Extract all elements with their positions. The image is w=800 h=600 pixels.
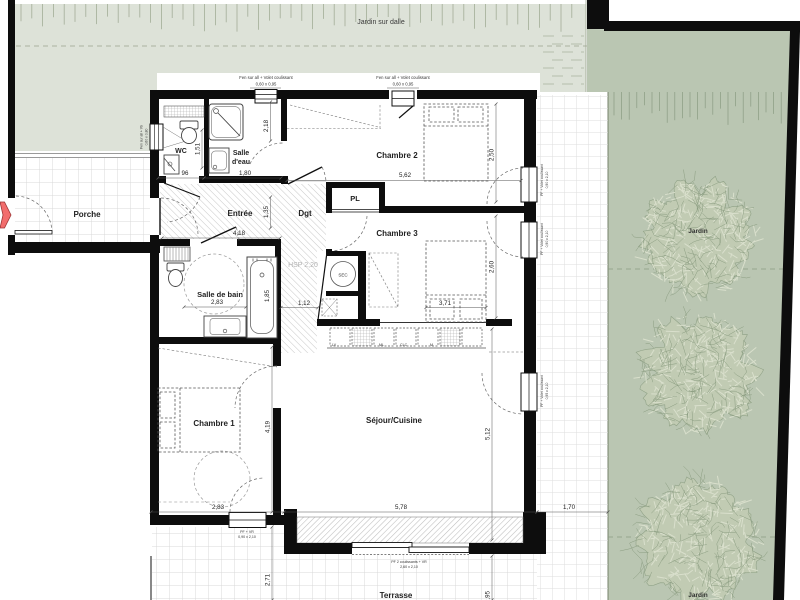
svg-text:Fen sur all + Volet coulissant: Fen sur all + Volet coulissant [376,75,430,80]
svg-text:PL: PL [350,194,360,203]
svg-text:5,62: 5,62 [399,172,412,179]
svg-text:Séjour/Cuisine: Séjour/Cuisine [366,416,423,425]
svg-text:1,12: 1,12 [298,300,311,307]
svg-text:96: 96 [182,170,189,177]
svg-text:WC: WC [175,148,187,155]
svg-text:2,83: 2,83 [212,504,225,511]
svg-text:Porche: Porche [73,210,101,219]
svg-text:2,71: 2,71 [265,573,272,586]
svg-text:Chambre 2: Chambre 2 [376,151,418,160]
svg-text:0,60 x 0,95: 0,60 x 0,95 [393,82,414,87]
svg-text:Jardin: Jardin [688,228,708,235]
svg-text:1,51: 1,51 [195,142,202,155]
svg-text:2,60: 2,60 [489,260,496,273]
svg-text:0,90 x 2,10: 0,90 x 2,10 [545,230,549,247]
svg-text:Chambre 3: Chambre 3 [376,229,418,238]
svg-text:0,90 x 2,10: 0,90 x 2,10 [545,171,549,188]
svg-text:Jardin: Jardin [688,592,708,599]
svg-text:1,85: 1,85 [264,289,271,302]
svg-text:Entrée: Entrée [228,209,253,218]
svg-text:4,18: 4,18 [233,230,246,237]
svg-text:PF + Volet coulissant: PF + Volet coulissant [540,164,544,196]
svg-text:PF + VR: PF + VR [240,530,254,534]
svg-text:5,78: 5,78 [395,504,408,511]
svg-text:1,70: 1,70 [563,504,576,511]
svg-text:0,60 x 0,80: 0,60 x 0,80 [145,128,149,145]
svg-text:0,95 x 2,10: 0,95 x 2,10 [545,382,549,399]
svg-text:2,18: 2,18 [263,119,270,132]
svg-text:Salle de bain: Salle de bain [197,290,243,299]
svg-text:Fen sur all + Volet coulissant: Fen sur all + Volet coulissant [239,75,293,80]
svg-text:SEC: SEC [338,273,348,278]
svg-text:0,60 x 0,95: 0,60 x 0,95 [256,82,277,87]
svg-text:Salle: Salle [233,150,249,157]
svg-text:2,60 x 2,10: 2,60 x 2,10 [400,565,418,569]
svg-text:2,83: 2,83 [211,299,224,306]
svg-text:5,12: 5,12 [485,427,492,440]
svg-text:2,50: 2,50 [489,148,496,161]
svg-text:CLC: CLC [400,343,408,347]
svg-text:PF + Volet coulissant: PF + Volet coulissant [540,375,544,407]
svg-text:3,71: 3,71 [439,300,452,307]
svg-text:PF + Volet coulissant: PF + Volet coulissant [540,223,544,255]
svg-text:0,90 x 2,10: 0,90 x 2,10 [238,535,256,539]
svg-text:Terrasse: Terrasse [380,591,413,600]
svg-text:Chambre 1: Chambre 1 [193,419,235,428]
svg-text:2,95: 2,95 [485,590,492,600]
svg-text:Dgt: Dgt [298,209,312,218]
svg-text:PF 2 coulissants + VR: PF 2 coulissants + VR [391,560,427,564]
svg-text:4,19: 4,19 [265,420,272,433]
svg-text:1,80: 1,80 [239,170,252,177]
svg-text:1,35: 1,35 [263,205,270,218]
svg-text:Jardin sur dalle: Jardin sur dalle [357,19,405,26]
svg-text:d'eau: d'eau [232,159,250,166]
svg-text:M: M [430,343,433,347]
svg-text:HSP 2,20: HSP 2,20 [288,262,318,269]
svg-text:LV: LV [332,343,337,347]
svg-text:Fen sur all + Vb: Fen sur all + Vb [140,125,144,149]
svg-text:ML: ML [379,343,384,347]
